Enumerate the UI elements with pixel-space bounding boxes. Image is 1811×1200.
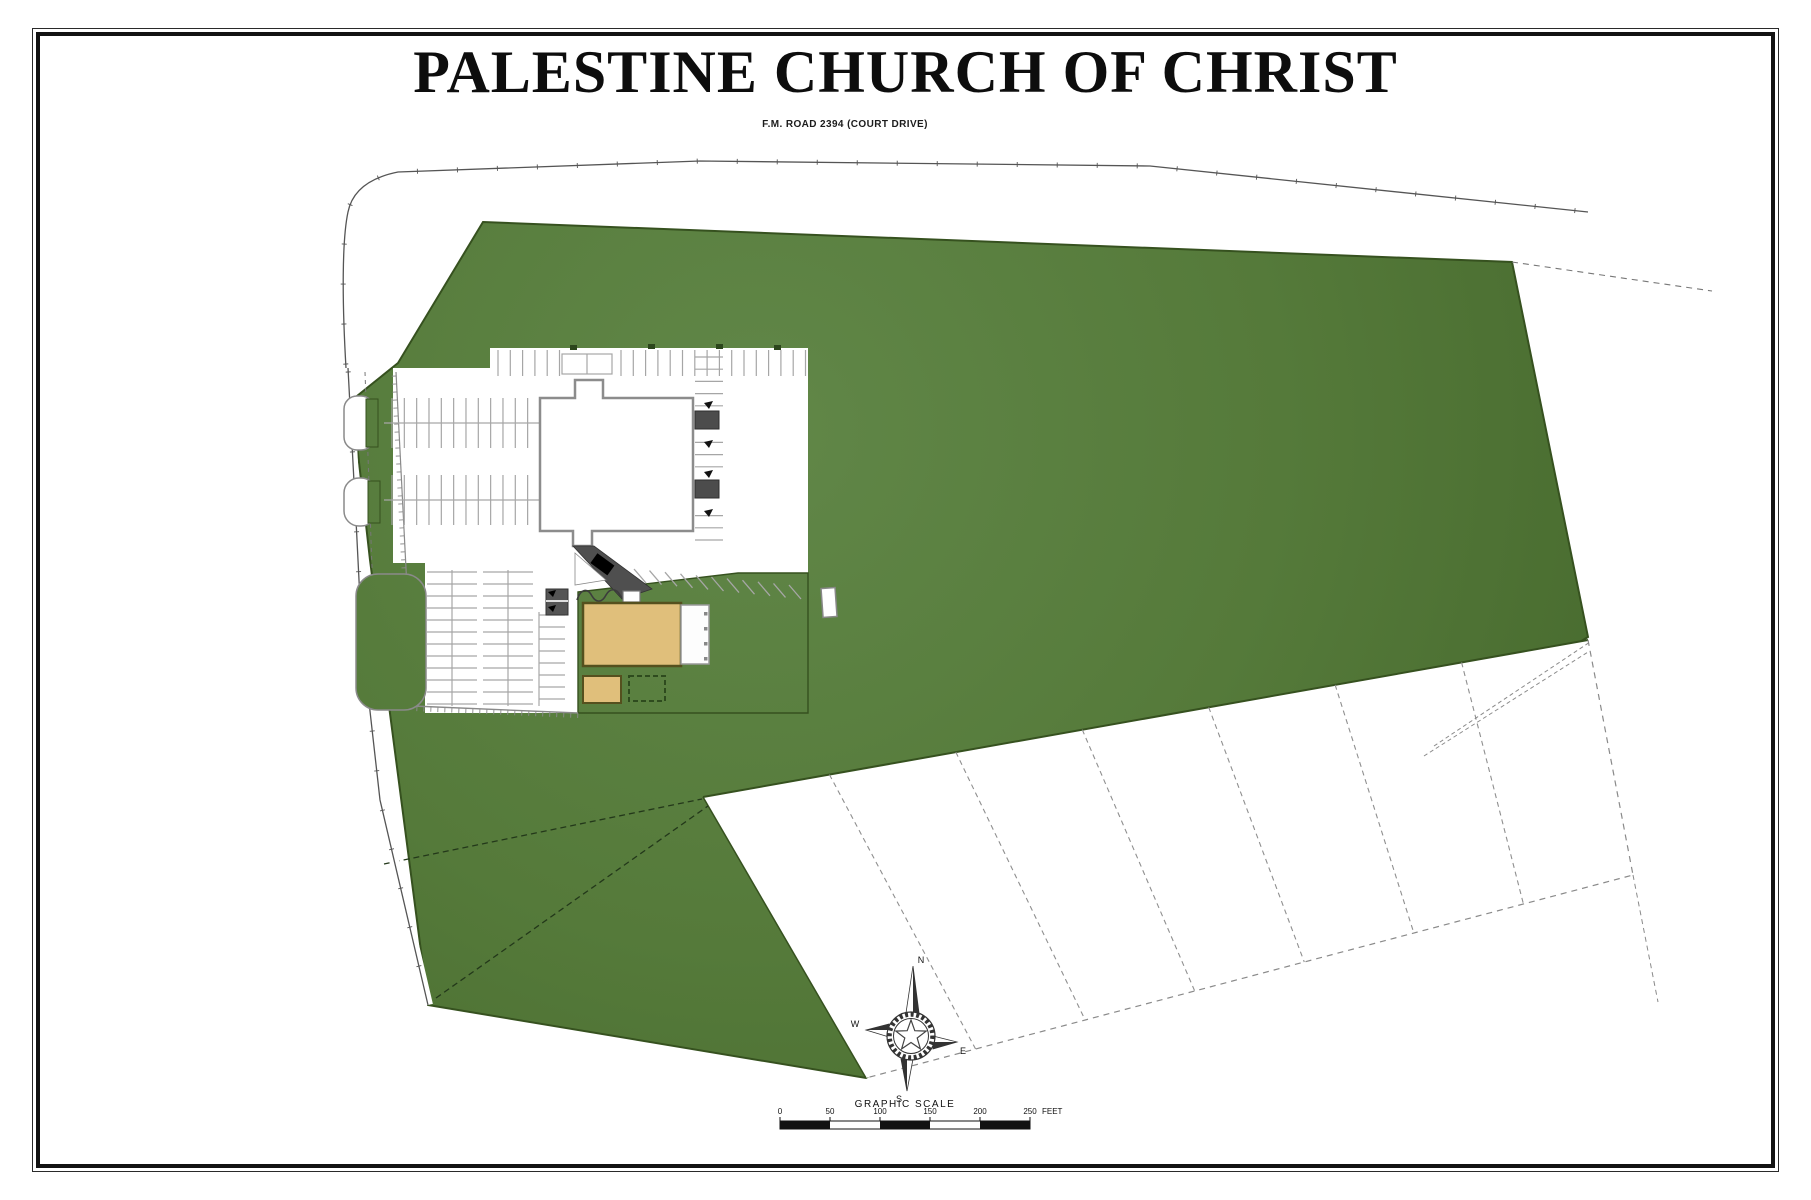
- field-marker: [821, 588, 837, 618]
- existing-building-tan: [583, 603, 681, 666]
- entry-canopy-2: [695, 480, 719, 498]
- svg-text:150: 150: [923, 1107, 937, 1116]
- svg-text:N: N: [918, 955, 925, 965]
- svg-text:50: 50: [826, 1107, 835, 1116]
- svg-text:200: 200: [973, 1107, 987, 1116]
- shrub: [648, 344, 655, 349]
- shed-tan: [583, 676, 621, 703]
- plan-title: PALESTINE CHURCH OF CHRIST: [0, 38, 1811, 107]
- svg-text:E: E: [960, 1046, 966, 1056]
- site-plan-drawing: NSWEGRAPHIC SCALE050100150200250FEET: [0, 0, 1811, 1200]
- svg-text:W: W: [851, 1019, 860, 1029]
- shrub: [570, 345, 577, 350]
- road-name-label: F.M. ROAD 2394 (COURT DRIVE): [762, 119, 928, 130]
- svg-text:250: 250: [1023, 1107, 1037, 1116]
- svg-text:100: 100: [873, 1107, 887, 1116]
- entry-canopy-1: [695, 411, 719, 429]
- shrub: [774, 345, 781, 350]
- pavement-upper-left: [393, 368, 493, 563]
- boundary-dash-topright: [1512, 262, 1712, 291]
- plan-sheet: NSWEGRAPHIC SCALE050100150200250FEET PAL…: [0, 0, 1811, 1200]
- walk-pad: [623, 591, 640, 602]
- svg-text:FEET: FEET: [1042, 1107, 1063, 1116]
- svg-text:GRAPHIC SCALE: GRAPHIC SCALE: [855, 1099, 956, 1110]
- shrub: [716, 344, 723, 349]
- pavement-lower: [425, 555, 580, 713]
- church-building: [540, 380, 693, 546]
- green-island: [356, 574, 426, 710]
- graphic-scale: GRAPHIC SCALE050100150200250FEET: [778, 1099, 1063, 1129]
- svg-text:0: 0: [778, 1107, 783, 1116]
